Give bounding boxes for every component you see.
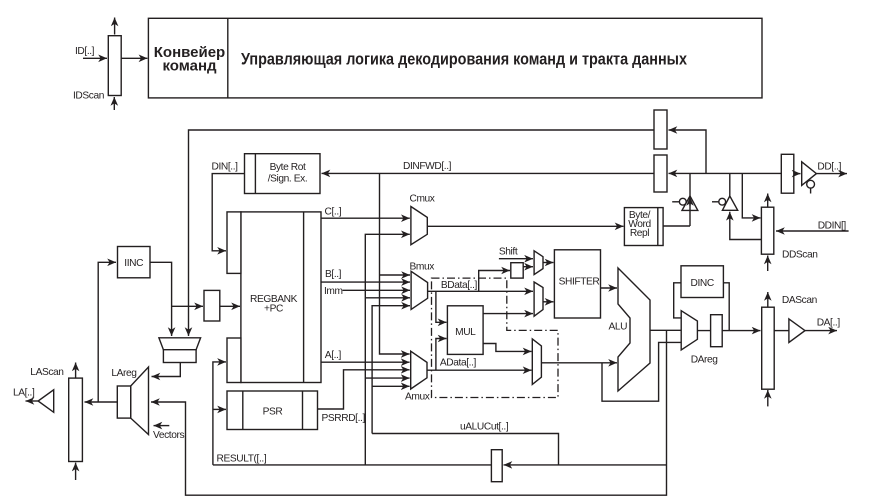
svg-text:+PC: +PC [264,304,283,315]
svg-text:LAreg: LAreg [111,368,137,379]
svg-text:IDScan: IDScan [73,91,104,102]
svg-text:DIN[..]: DIN[..] [212,162,239,173]
svg-text:ALU: ALU [609,322,628,333]
svg-text:LA[..]: LA[..] [13,388,35,399]
svg-text:Shift: Shift [499,247,518,258]
svg-text:Cmux: Cmux [410,194,435,205]
svg-text:/Sign. Ex.: /Sign. Ex. [268,174,308,185]
svg-text:MUL: MUL [455,327,476,338]
svg-text:DINFWD[..]: DINFWD[..] [403,161,452,172]
svg-text:DAScan: DAScan [782,295,817,306]
svg-text:Repl: Repl [630,228,649,239]
svg-text:DINC: DINC [691,278,714,289]
svg-text:Vectors: Vectors [153,430,184,441]
svg-text:IINC: IINC [124,258,143,269]
svg-text:DDIN[]: DDIN[] [818,221,847,232]
svg-text:PSRRD[..]: PSRRD[..] [322,413,366,424]
svg-text:Byte Rot: Byte Rot [270,162,306,173]
svg-text:DDScan: DDScan [782,250,818,261]
svg-text:Bmux: Bmux [410,262,435,273]
svg-text:SHIFTER: SHIFTER [559,277,600,288]
svg-text:RESULT([..]: RESULT([..] [217,454,267,465]
svg-text:Imm: Imm [324,286,343,297]
svg-text:AData[..]: AData[..] [440,358,477,369]
svg-text:LAScan: LAScan [30,367,63,378]
svg-text:DA[..]: DA[..] [817,317,841,328]
svg-text:DD[..]: DD[..] [817,162,841,173]
svg-text:Управляющая логика декодирован: Управляющая логика декодирования команд … [241,51,688,69]
svg-text:B[..]: B[..] [325,269,342,280]
svg-text:команд: команд [162,57,217,74]
svg-text:Amux: Amux [405,392,430,403]
svg-text:PSR: PSR [263,407,283,418]
svg-text:BData[..]: BData[..] [441,280,478,291]
svg-text:ID[..]: ID[..] [75,46,95,57]
svg-text:uALUCut[..]: uALUCut[..] [460,422,509,433]
svg-text:C[..]: C[..] [325,207,342,218]
svg-text:DAreg: DAreg [691,355,719,366]
svg-text:A[..]: A[..] [325,350,342,361]
